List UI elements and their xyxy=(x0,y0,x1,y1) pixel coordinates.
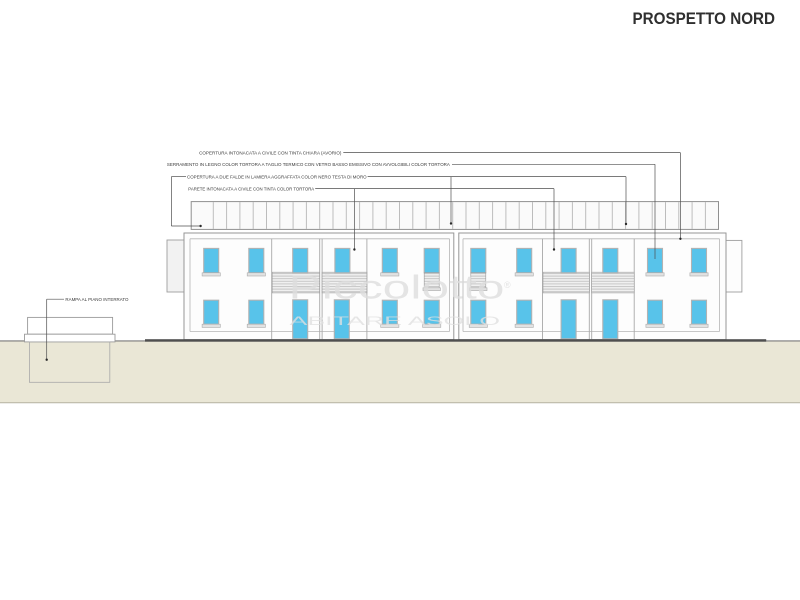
svg-text:SERRAMENTO IN LEGNO COLOR TORT: SERRAMENTO IN LEGNO COLOR TORTORA A TAGL… xyxy=(167,162,451,167)
svg-text:PARETE INTONACATA A CIVILE CON: PARETE INTONACATA A CIVILE CON TINTA COL… xyxy=(188,187,315,192)
svg-text:RAMPA AL PIANO INTERRATO: RAMPA AL PIANO INTERRATO xyxy=(65,297,128,302)
svg-text:PROSPETTO NORD: PROSPETTO NORD xyxy=(633,10,776,28)
svg-text:Piccolotto: Piccolotto xyxy=(289,269,505,306)
svg-text:COPERTURA A DUE FALDE IN LAMIE: COPERTURA A DUE FALDE IN LAMIERA AGGRAFF… xyxy=(187,174,367,179)
svg-text:ABITARE ASOLO: ABITARE ASOLO xyxy=(290,316,501,328)
svg-text:®: ® xyxy=(504,280,511,290)
svg-text:COPERTURA INTONACATA A CIVILE: COPERTURA INTONACATA A CIVILE CON TINTA … xyxy=(199,151,342,156)
